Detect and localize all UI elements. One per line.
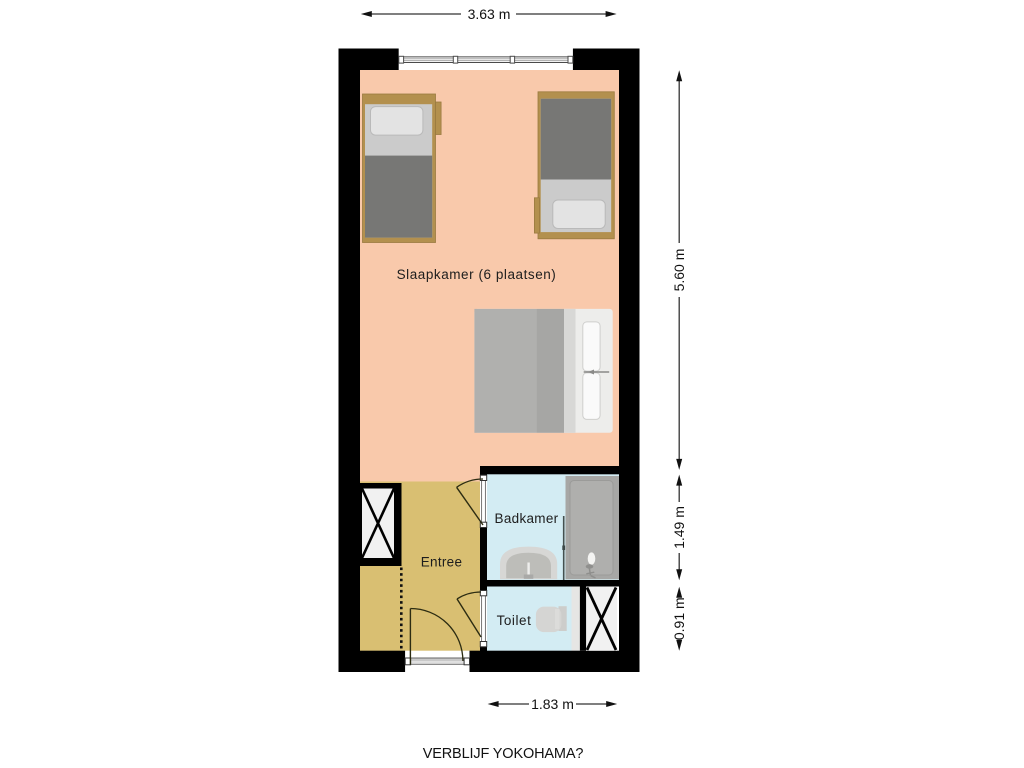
svg-text:VERBLIJF YOKOHAMA?: VERBLIJF YOKOHAMA? xyxy=(423,746,584,762)
svg-text:Badkamer: Badkamer xyxy=(495,511,559,526)
svg-text:Slaapkamer (6 plaatsen): Slaapkamer (6 plaatsen) xyxy=(397,267,557,282)
svg-text:1.49 m: 1.49 m xyxy=(671,506,687,549)
svg-text:0.91 m: 0.91 m xyxy=(671,597,687,640)
svg-text:3.63 m: 3.63 m xyxy=(468,6,511,22)
svg-text:Entree: Entree xyxy=(421,555,463,570)
svg-text:1.83 m: 1.83 m xyxy=(531,696,574,712)
svg-text:Toilet: Toilet xyxy=(497,613,532,628)
svg-text:5.60 m: 5.60 m xyxy=(671,249,687,292)
